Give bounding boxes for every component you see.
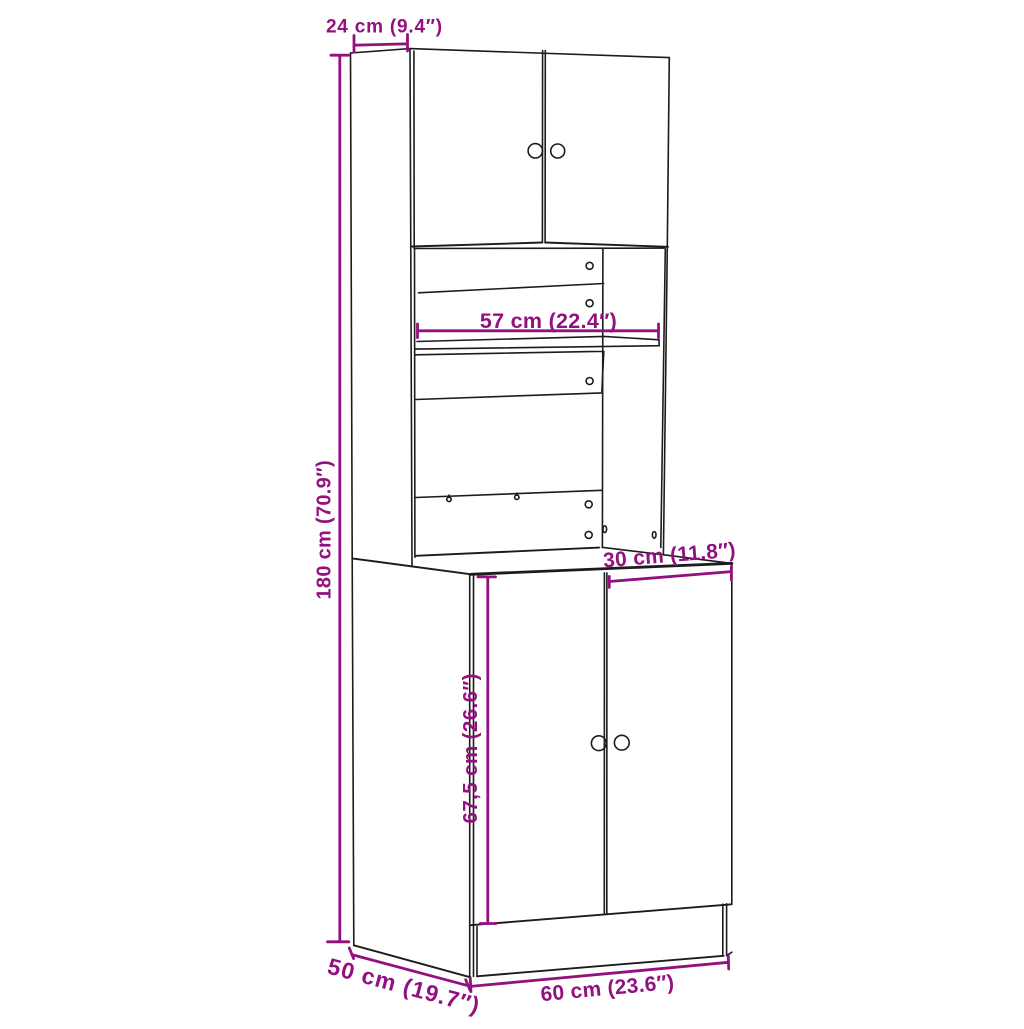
svg-text:57 cm (22.4″): 57 cm (22.4″) bbox=[480, 309, 617, 333]
svg-text:67,5 cm (26.6″): 67,5 cm (26.6″) bbox=[459, 673, 482, 823]
svg-text:24 cm (9.4″): 24 cm (9.4″) bbox=[326, 17, 443, 38]
svg-text:180 cm (70.9″): 180 cm (70.9″) bbox=[314, 460, 336, 599]
